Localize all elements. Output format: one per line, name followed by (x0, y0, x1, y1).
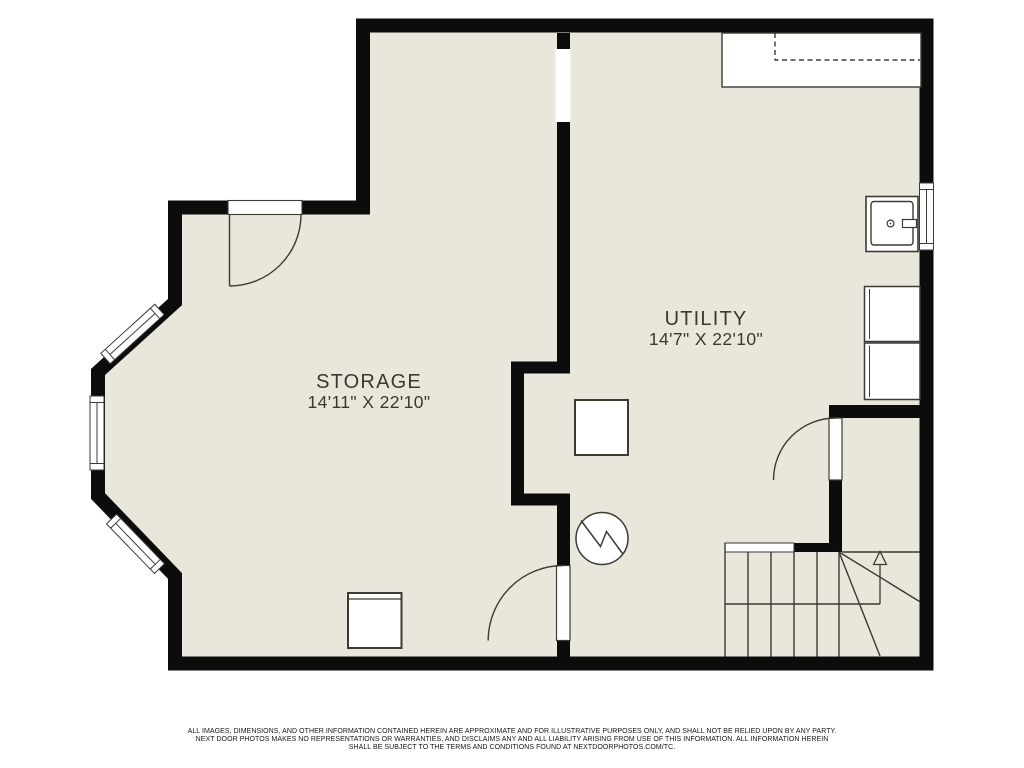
disclaimer-text: ALL IMAGES, DIMENSIONS, AND OTHER INFORM… (0, 728, 1024, 753)
utility-room-label: UTILITY (665, 308, 748, 330)
counter-shelf (722, 33, 921, 87)
utility-room-dimensions: 14'7" X 22'10" (649, 329, 763, 349)
bay-window-middle-pane (90, 396, 104, 470)
disclaimer-line-1: ALL IMAGES, DIMENSIONS, AND OTHER INFORM… (0, 728, 1024, 736)
storage-room-label: STORAGE (316, 371, 422, 393)
floorplan-drawing: STORAGE 14'11" X 22'10" UTILITY 14'7" X … (0, 0, 1024, 768)
utility-sink-icon (866, 197, 918, 252)
disclaimer-line-2: NEXT DOOR PHOTOS MAKES NO REPRESENTATION… (0, 736, 1024, 744)
storage-room-dimensions: 14'11" X 22'10" (307, 392, 430, 412)
floor (98, 26, 927, 664)
dryer-icon (865, 343, 921, 400)
furnace-pad-icon (575, 400, 628, 455)
washer-icon (865, 287, 921, 342)
floorplan-page: STORAGE 14'11" X 22'10" UTILITY 14'7" X … (0, 0, 1024, 768)
disclaimer-line-3: SHALL BE SUBJECT TO THE TERMS AND CONDIT… (0, 744, 1024, 752)
storage-cabinet-icon (348, 593, 402, 648)
right-wall-window (920, 183, 934, 250)
sump-pump-icon (576, 513, 628, 565)
stair-rail (725, 543, 794, 552)
